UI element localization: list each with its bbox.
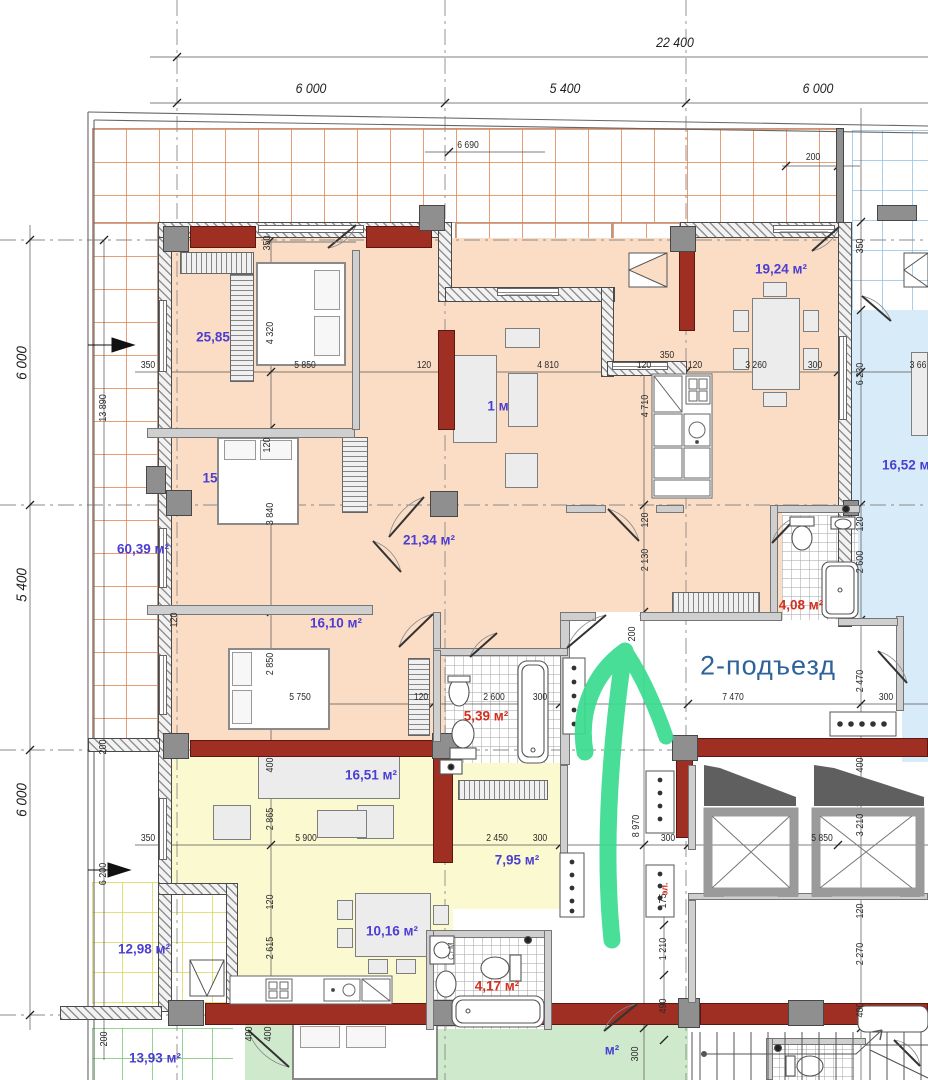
floor-plan: 22 400 6 000 5 400 6 000 6 690 200 350 3… <box>0 0 928 1080</box>
green-arrow-annotation <box>0 0 928 1080</box>
